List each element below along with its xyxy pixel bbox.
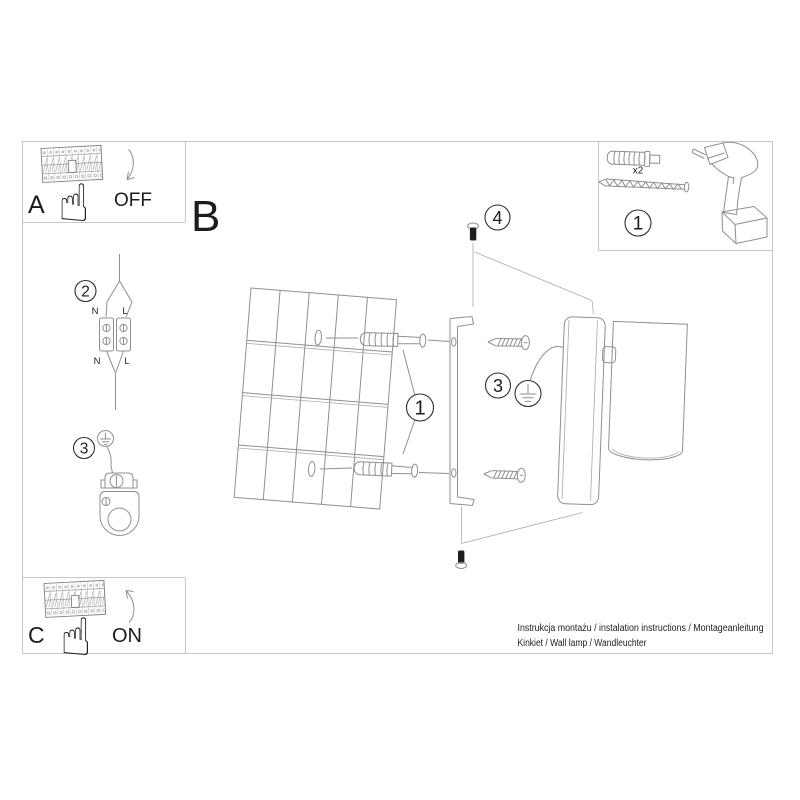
power-off-label: OFF: [114, 190, 152, 211]
wall-plug-in-hole-top: [360, 333, 426, 348]
step-1-badge-wall: 1: [403, 350, 434, 454]
bracket-hole-top: [452, 338, 456, 346]
lamp-cable-top: [106, 254, 132, 317]
instruction-sheet: ☝ A OFF B x2 1: [0, 0, 800, 800]
power-on-label: ON: [112, 625, 142, 647]
section-c-label: C: [28, 622, 45, 648]
ground-symbol-icon: [98, 431, 114, 447]
svg-text:1: 1: [414, 398, 425, 420]
ground-clamp-icon: [101, 473, 137, 488]
canopy-bracket-icon: [100, 492, 139, 536]
wall-plug-in-hole-bottom: [354, 462, 418, 478]
tiled-wall: [234, 288, 396, 509]
section-dividers: [23, 142, 773, 654]
drill-icon: [692, 142, 767, 243]
fixing-screw-bottom: [456, 506, 583, 569]
hand-pressing-icon: ☝: [60, 609, 92, 667]
arrow-up-icon: [126, 591, 134, 623]
section-b-label: B: [191, 192, 220, 241]
svg-text:1: 1: [633, 214, 644, 235]
lamp-cable-bottom: [107, 351, 124, 410]
section-a-box: ☝ A OFF: [28, 145, 152, 233]
step-2-badge: 2: [75, 281, 96, 302]
step-3-badge-lamp: 3: [486, 373, 511, 398]
svg-text:4: 4: [492, 208, 502, 228]
grounding-diagram: 3: [74, 431, 140, 536]
included-tools-box: x2 1: [598, 142, 767, 243]
lamp-shade: [608, 321, 687, 461]
section-c-box: ☝ C ON: [28, 580, 142, 667]
terminal-block-icon: [100, 318, 131, 351]
terminal-label-l-top: L: [122, 306, 127, 317]
terminal-label-n-top: N: [92, 306, 99, 317]
terminal-label-n-bottom: N: [94, 356, 101, 367]
svg-text:3: 3: [80, 441, 89, 458]
bracket-hole-bottom: [452, 469, 456, 477]
ground-symbol-lamp: [515, 381, 541, 407]
wire-connection-diagram: 2 N L N L: [75, 254, 132, 410]
mounting-screw-top: [488, 335, 530, 350]
wall-plug-icon: [607, 150, 660, 167]
screw-icon: [598, 177, 689, 192]
mounting-bracket: [450, 317, 474, 506]
mounting-screw-bottom: [484, 467, 526, 482]
wall-lamp: [557, 317, 687, 509]
step-3-badge-left: 3: [74, 438, 95, 459]
svg-text:3: 3: [493, 376, 503, 396]
footer-product-name: Kinkiet / Wall lamp / Wandleuchter: [518, 638, 648, 649]
svg-text:2: 2: [81, 284, 90, 301]
drill-hole-top: [314, 330, 322, 345]
step-4-badge: 4: [485, 205, 510, 230]
diagram-canvas: ☝ A OFF B x2 1: [0, 0, 800, 800]
leader-plug-to-bracket-top: [428, 340, 449, 342]
footer-instructions: Instrukcja montażu / instalation instruc…: [518, 623, 764, 634]
step-1-badge: 1: [625, 210, 651, 236]
terminal-label-l-bottom: L: [124, 356, 129, 367]
leader-plug-to-bracket-bottom: [419, 473, 449, 474]
hand-pressing-icon: ☝: [58, 175, 90, 233]
sheet-border: [23, 142, 773, 654]
section-a-label: A: [28, 191, 45, 219]
lamp-backplate: [557, 317, 605, 505]
ground-wire-lamp: [530, 346, 563, 380]
arrow-down-icon: [127, 150, 135, 180]
drill-hole-bottom: [308, 461, 316, 476]
ground-wire-left: [107, 447, 113, 473]
plug-quantity-label: x2: [633, 166, 644, 177]
fixing-screw-top: [468, 223, 594, 314]
